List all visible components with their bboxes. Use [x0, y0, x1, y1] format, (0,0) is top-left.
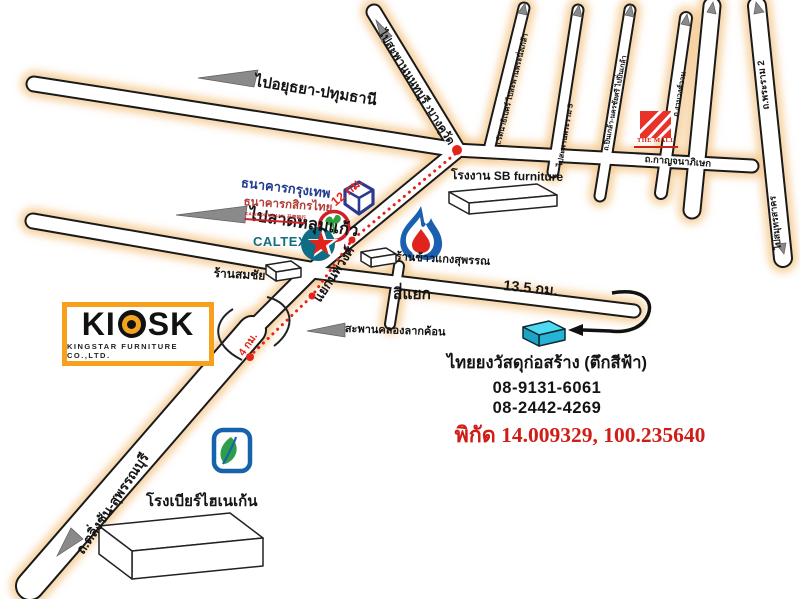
bangchak-logo-icon [214, 430, 250, 471]
kiosk-brand-left: KI [82, 308, 116, 340]
sb-factory-label: โรงงาน SB furniture [451, 169, 563, 184]
caltex-label: CALTEX [253, 235, 307, 249]
kiosk-target-icon [118, 310, 146, 338]
somchai-shop-building [266, 261, 301, 281]
arrow-to-latlumkaeo [176, 206, 247, 223]
kiosk-brand-row: KI SK [82, 308, 194, 340]
junction-label-siyaek: สี่แยก [393, 287, 431, 303]
kiosk-brand-right: SK [148, 308, 194, 340]
kiosk-subtitle: KINGSTAR FURNITURE CO.,LTD. [67, 342, 209, 360]
destination-name: ไทยยงวัสดุก่อสร้าง (ตึกสีฟ้า) [438, 355, 656, 372]
arrow-to-ayutthaya [198, 70, 258, 87]
destination-phone-2: 08-2442-4269 [438, 400, 656, 417]
the-mall-label: THE MALL [634, 138, 678, 148]
sb-factory-building [449, 184, 557, 214]
heineken-brewery-label: โรงเบียร์ไฮเนเก้น [146, 494, 257, 510]
rice-shop-building [361, 248, 396, 267]
route-dot-junction [452, 145, 462, 155]
destination-phone-1: 08-9131-6061 [438, 380, 656, 397]
heineken-brewery-building [99, 513, 263, 579]
somchai-shop-label: ร้านสมชัย [213, 267, 265, 282]
map-canvas: ไปอยุธยา-ปทุมธานี ไปสะพานนนทบุรี ›บางคูว… [0, 0, 800, 599]
destination-coordinates: พิกัด 14.009329, 100.235640 [400, 424, 760, 447]
kiosk-logo: KI SK KINGSTAR FURNITURE CO.,LTD. [62, 302, 214, 366]
arrow-bridge-pointer [307, 323, 345, 337]
blue-building-icon [523, 321, 565, 346]
